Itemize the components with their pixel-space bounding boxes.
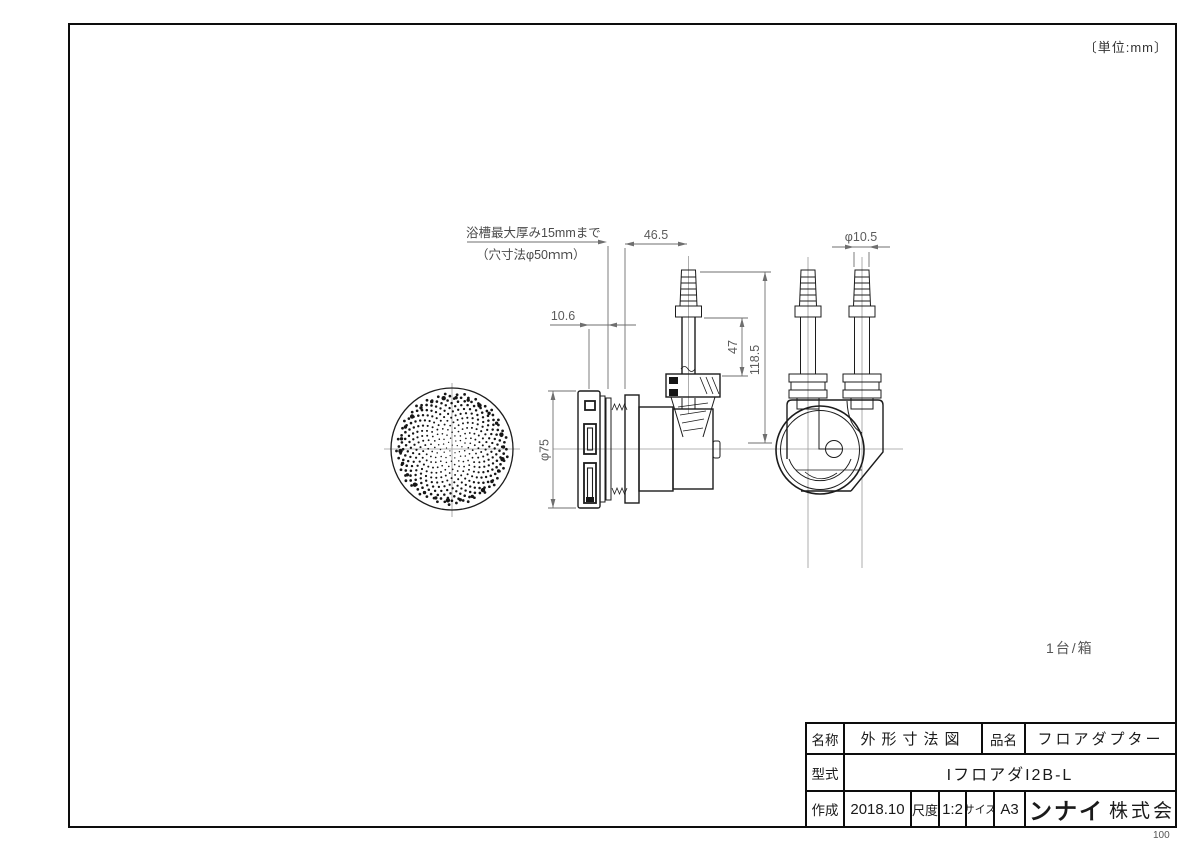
page-number: 100 <box>1153 830 1170 841</box>
model-value-cell: IフロアダI2B-L <box>845 755 1175 790</box>
title-block-row-name: 名称 外形寸法図 品名 フロアダプター <box>807 724 1175 755</box>
dimension-47: 47 <box>704 318 748 376</box>
tub-note-line2: （穴寸法φ50ｍｍ） <box>476 247 586 262</box>
tub-note-line1: 浴槽最大厚み15mmまで <box>466 226 601 240</box>
dimension-118-5: 118.5 <box>700 272 772 443</box>
scale-value-cell: 1:2 <box>940 792 967 826</box>
model-label-cell: 型式 <box>807 755 845 790</box>
scale-label-cell: 尺度 <box>912 792 940 826</box>
center-lines <box>384 256 903 568</box>
title-block-row-meta: 作成 2018.10 尺度 1:2 サイズ A3 リンナイ 株式会社 <box>807 792 1175 826</box>
dimension-dia-75: φ75 <box>538 391 577 508</box>
dimension-10-6-text: 10.6 <box>551 309 575 323</box>
name-value-cell: 外形寸法図 <box>845 724 983 753</box>
dimension-46-5-text: 46.5 <box>644 228 668 242</box>
size-value-cell: A3 <box>995 792 1026 826</box>
title-block: 名称 外形寸法図 品名 フロアダプター 型式 IフロアダI2B-L 作成 201… <box>805 722 1177 828</box>
title-block-row-model: 型式 IフロアダI2B-L <box>807 755 1175 792</box>
drawing-sheet: 〔単位:mm〕 <box>0 0 1200 849</box>
rear-view-adapter <box>776 270 883 494</box>
dimension-118-5-text: 118.5 <box>748 345 762 375</box>
dimension-dia-10-5: φ10.5 <box>832 230 890 267</box>
dimension-dia-10-5-text: φ10.5 <box>845 230 877 244</box>
side-view-adapter <box>578 270 720 508</box>
dimension-dia-75-text: φ75 <box>538 439 552 461</box>
dimension-47-text: 47 <box>726 340 740 354</box>
company-logo-text: リンナイ <box>1026 792 1104 826</box>
dimension-46-5: 46.5 <box>625 228 687 389</box>
product-value-cell: フロアダプター <box>1026 724 1175 753</box>
product-label-cell: 品名 <box>983 724 1026 753</box>
dimension-10-6: 10.6 <box>550 309 636 389</box>
date-label-cell: 作成 <box>807 792 845 826</box>
company-suffix-text: 株式会社 <box>1109 796 1175 823</box>
tub-note: 浴槽最大厚み15mmまで （穴寸法φ50ｍｍ） <box>466 226 608 389</box>
company-cell: リンナイ 株式会社 <box>1026 792 1175 826</box>
date-value-cell: 2018.10 <box>845 792 912 826</box>
size-label-cell: サイズ <box>967 792 995 826</box>
name-label-cell: 名称 <box>807 724 845 753</box>
quantity-note: 1台/箱 <box>1046 638 1094 658</box>
